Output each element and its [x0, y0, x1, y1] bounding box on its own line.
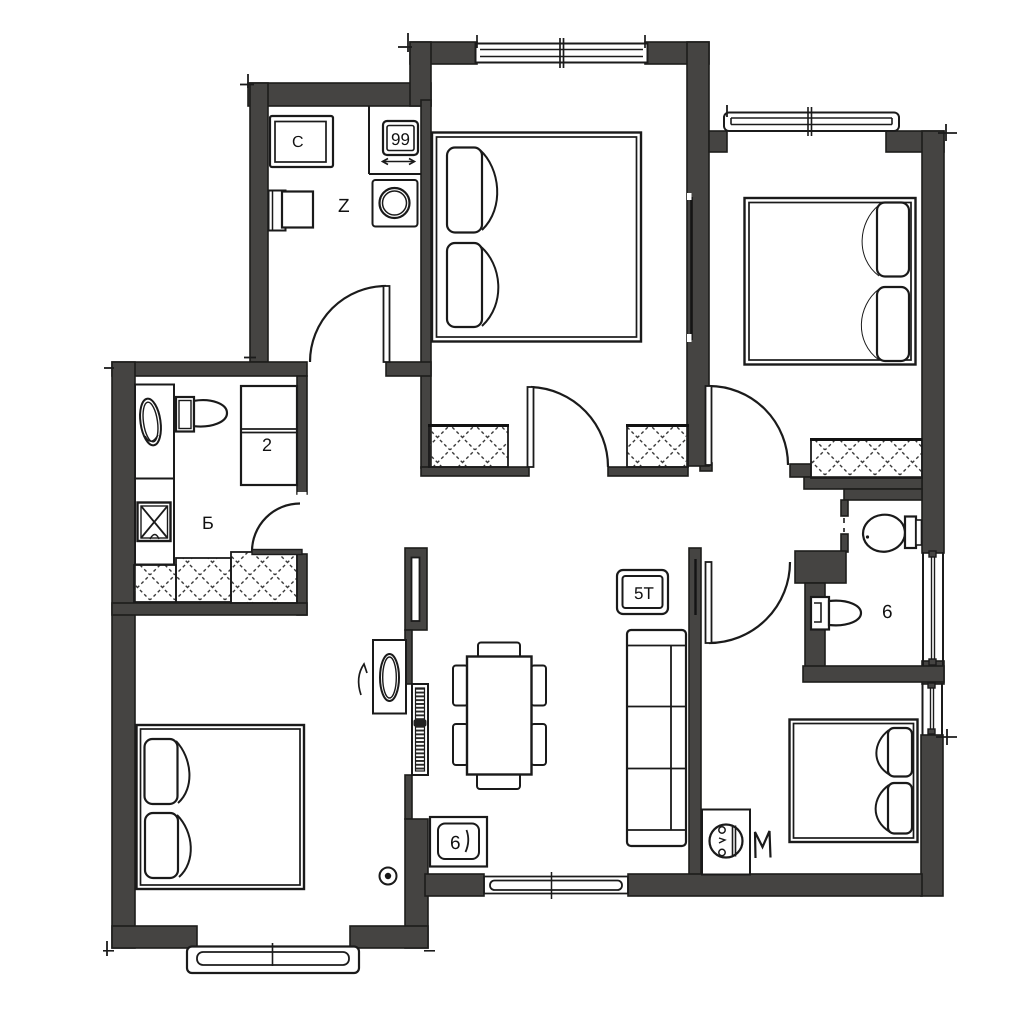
svg-text:C: C — [292, 134, 304, 151]
svg-text:Б: Б — [202, 513, 214, 533]
svg-text:6: 6 — [450, 833, 461, 854]
svg-text:Z: Z — [338, 196, 350, 217]
svg-text:99: 99 — [391, 130, 410, 149]
svg-text:5T: 5T — [634, 584, 654, 603]
svg-text:2: 2 — [262, 435, 272, 455]
svg-text:6: 6 — [882, 602, 893, 623]
